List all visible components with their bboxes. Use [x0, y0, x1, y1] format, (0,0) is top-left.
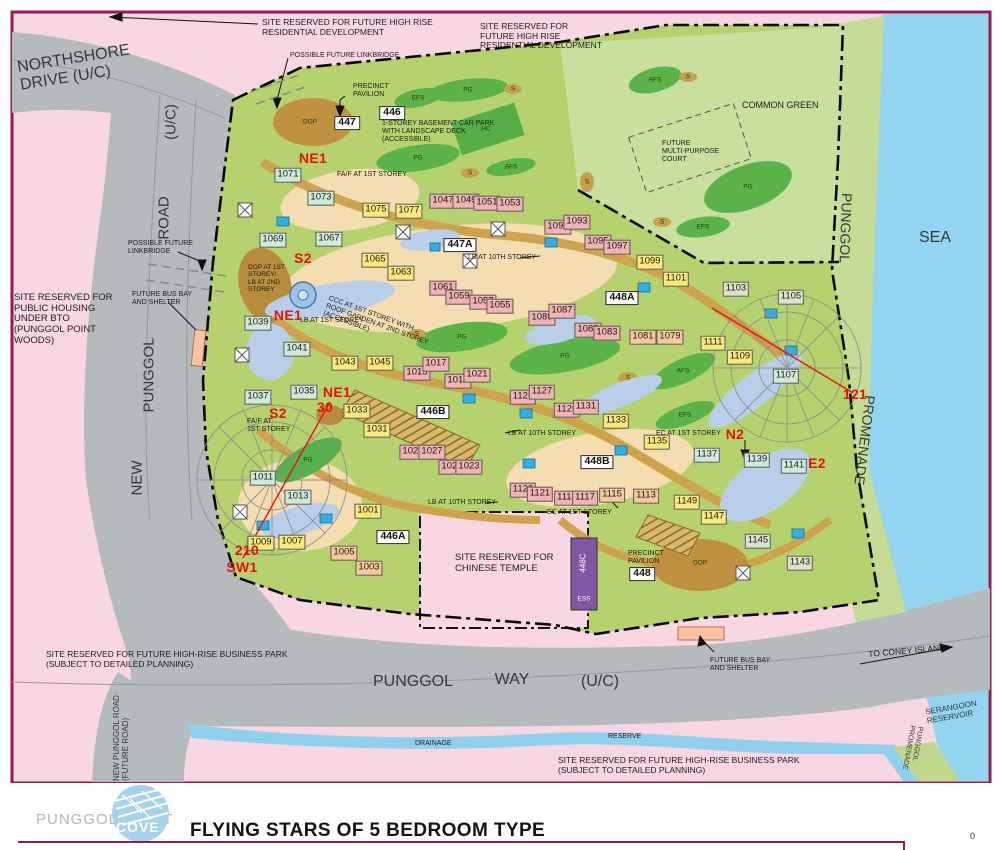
page-title: FLYING STARS OF 5 BEDROOM TYPE: [190, 820, 545, 842]
footer: PUNGGOL POINT COVE FLYING STARS OF 5 BED…: [0, 783, 1000, 850]
map-base-art: [0, 0, 1000, 850]
site-plan-page: 1071107310691067103910411037103510111013…: [0, 0, 1000, 850]
site-map: 1071107310691067103910411037103510111013…: [0, 0, 1000, 850]
footer-divider: [18, 841, 905, 843]
footer-divider-stub: [903, 841, 905, 850]
brand-cove-text: COVE: [116, 819, 160, 835]
page-mark: 0: [970, 831, 975, 841]
